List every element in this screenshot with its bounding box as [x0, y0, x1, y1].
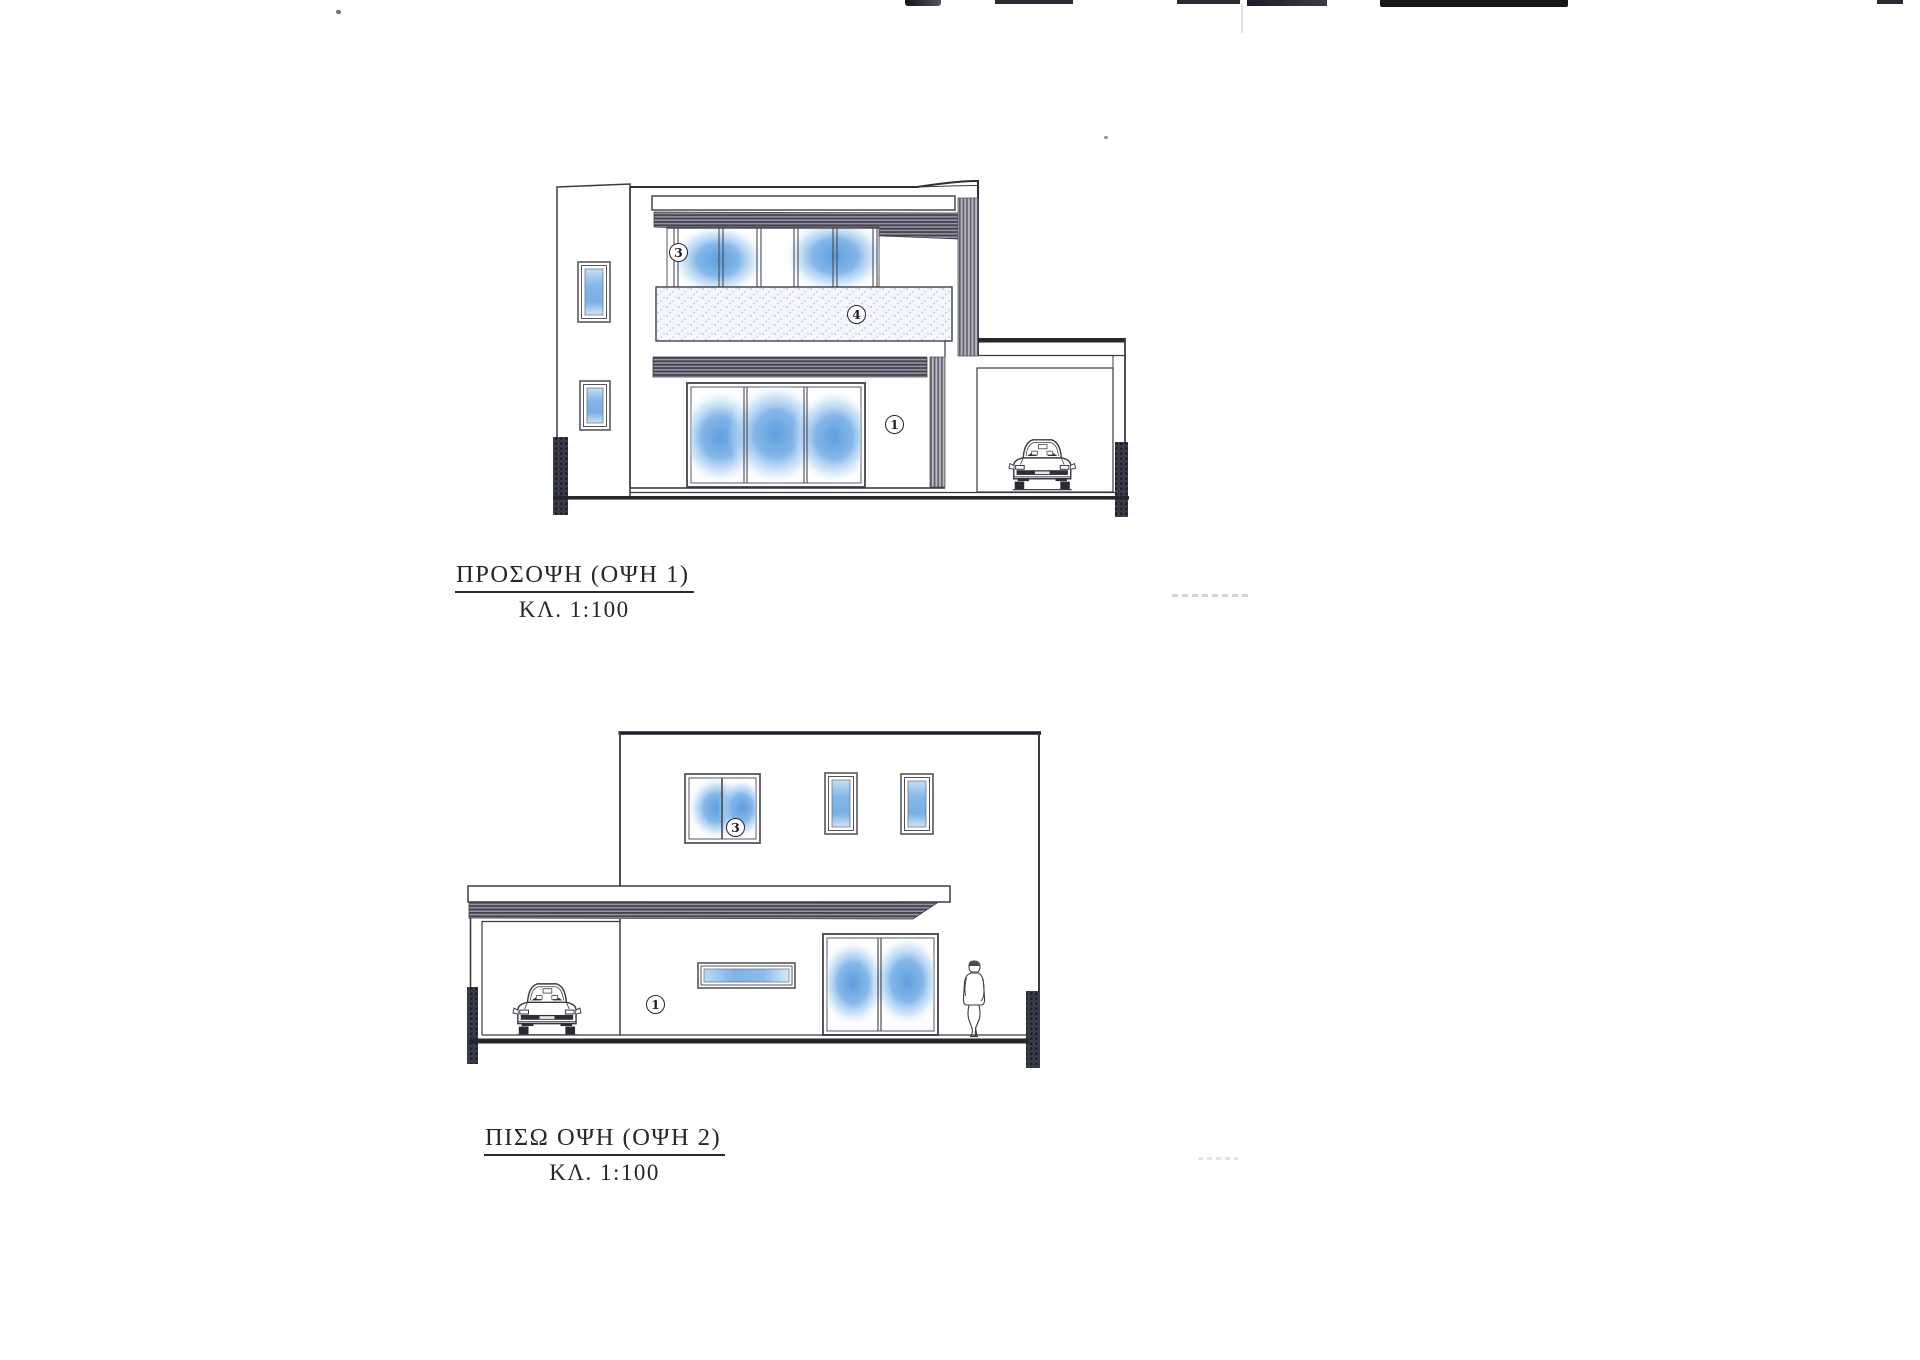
- corner-pilaster-lower: [930, 357, 945, 487]
- front-elevation-svg: [545, 170, 1145, 530]
- side-window-upper: [578, 262, 610, 322]
- canopy-shadow-louvers: [469, 902, 937, 919]
- canopy-slab: [468, 886, 950, 902]
- side-window-lower: [580, 381, 610, 430]
- back-window-small-2: [901, 774, 933, 834]
- upper-windows: [667, 218, 887, 296]
- strip-window: [698, 963, 795, 988]
- front-sliding-door: [678, 382, 876, 487]
- scan-artifact: [905, 0, 941, 6]
- callout-number: 4: [852, 307, 861, 322]
- car-drawing: [513, 984, 581, 1035]
- back-elevation-svg: [455, 725, 1115, 1085]
- left-post: [553, 437, 568, 515]
- scan-dot: [1104, 136, 1108, 139]
- ground-line: [553, 496, 1129, 500]
- callout-window: 3: [726, 818, 745, 837]
- ground-line: [469, 1039, 1029, 1044]
- callout-window: 3: [669, 243, 688, 262]
- roof-slab: [652, 196, 955, 210]
- person-figure: [963, 961, 984, 1037]
- ground-shadow-louvers: [653, 357, 927, 377]
- callout-number: 3: [731, 820, 740, 835]
- callout-wall: 1: [646, 995, 665, 1014]
- drawing-scale: ΚΛ. 1:100: [484, 1160, 725, 1186]
- drawing-title: ΠΙΣΩ ΟΨΗ (ΟΨΗ 2): [484, 1124, 725, 1156]
- scan-artifact: [1877, 0, 1903, 4]
- scan-artifact: [1247, 0, 1327, 6]
- garage: [977, 338, 1125, 496]
- scan-artifact: [1177, 0, 1240, 4]
- balcony-parapet: [656, 287, 952, 341]
- callout-wall: 1: [885, 415, 904, 434]
- right-post: [1115, 442, 1128, 517]
- scan-speck: [335, 9, 341, 14]
- back-elevation-title-block: ΠΙΣΩ ΟΨΗ (ΟΨΗ 2) ΚΛ. 1:100: [484, 1124, 725, 1186]
- front-elevation-title-block: ΠΡΟΣΟΨΗ (ΟΨΗ 1) ΚΛ. 1:100: [455, 561, 694, 623]
- scan-smudge: [1172, 594, 1250, 597]
- scan-smudge: [1198, 1157, 1238, 1160]
- callout-number: 3: [674, 245, 683, 260]
- garage-roof-edge: [978, 338, 1125, 343]
- drawing-scale: ΚΛ. 1:100: [455, 597, 694, 623]
- drawing-title: ΠΡΟΣΟΨΗ (ΟΨΗ 1): [455, 561, 694, 593]
- left-post: [467, 987, 478, 1064]
- callout-balcony: 4: [847, 305, 866, 324]
- callout-number: 1: [890, 417, 899, 432]
- back-window-large: [685, 774, 766, 843]
- back-window-small-1: [825, 773, 857, 834]
- corner-pilaster-upper: [958, 198, 978, 356]
- right-post: [1026, 991, 1040, 1068]
- scan-artifact: [995, 0, 1073, 4]
- scan-artifact: [1380, 0, 1568, 7]
- callout-number: 1: [651, 997, 660, 1012]
- scan-streak: [1241, 3, 1243, 33]
- scanned-drawing-sheet: 3 4 1 ΠΡΟΣΟΨΗ (ΟΨΗ 1) ΚΛ. 1:100: [0, 0, 1920, 1360]
- back-sliding-door: [819, 934, 943, 1035]
